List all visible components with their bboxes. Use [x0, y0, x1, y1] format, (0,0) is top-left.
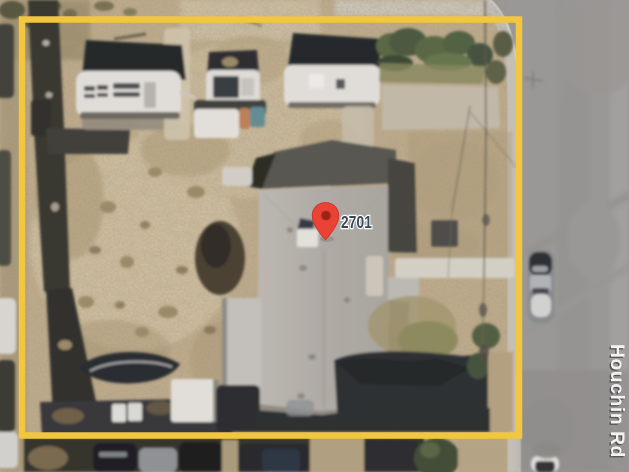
- svg-text:Houchin Rd: Houchin Rd: [606, 344, 628, 458]
- svg-text:2701: 2701: [341, 212, 372, 232]
